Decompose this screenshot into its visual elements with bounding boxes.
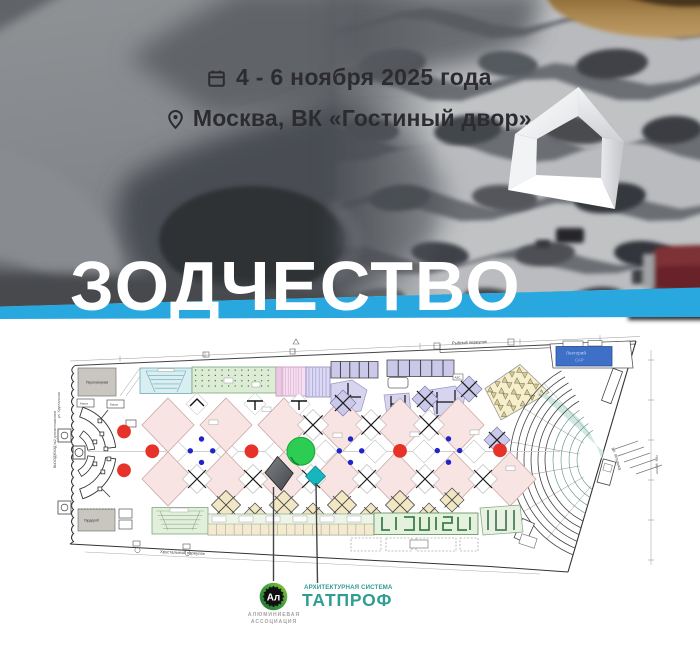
svg-text:сущ. здание: сущ. здание xyxy=(655,455,659,474)
svg-text:Хрустальный переулок: Хрустальный переулок xyxy=(160,549,205,556)
svg-text:САР: САР xyxy=(575,358,584,363)
svg-text:Лекторий: Лекторий xyxy=(566,350,586,356)
svg-text:Рыбный переулок: Рыбный переулок xyxy=(452,339,487,346)
svg-text:Переговорная: Переговорная xyxy=(86,381,108,385)
svg-text:ВЫХОД/ВХОД №2 для монтажников: ВЫХОД/ВХОД №2 для монтажников xyxy=(53,411,57,468)
svg-text:Ал: Ал xyxy=(267,592,281,603)
svg-text:Киоск: Киоск xyxy=(80,402,89,406)
svg-text:АЗС: АЗС xyxy=(455,376,462,380)
svg-text:ул. Хрустальная: ул. Хрустальная xyxy=(57,392,61,418)
svg-text:Гардероб: Гардероб xyxy=(84,519,99,523)
svg-text:Киоск: Киоск xyxy=(110,403,119,407)
